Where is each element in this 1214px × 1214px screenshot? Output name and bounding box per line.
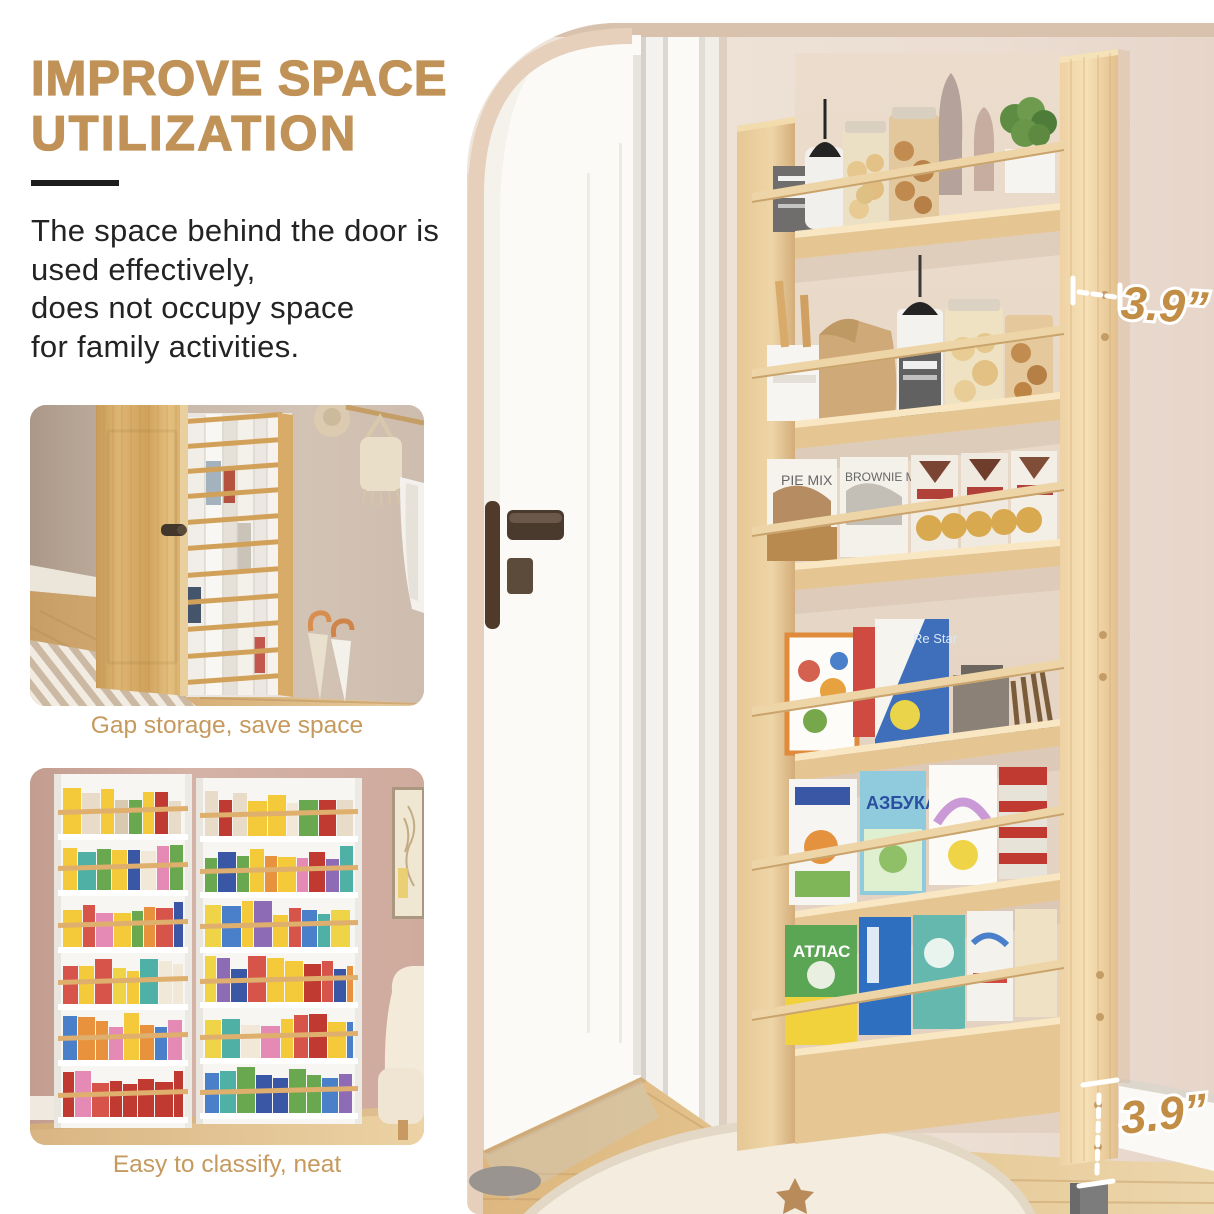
svg-text:PIE MIX: PIE MIX [781, 472, 833, 488]
svg-text:Re Star: Re Star [913, 631, 958, 646]
svg-text:АТЛАС: АТЛАС [793, 942, 850, 961]
svg-text:3.9”: 3.9” [1119, 276, 1209, 334]
svg-text:3.9”: 3.9” [1118, 1083, 1210, 1144]
svg-text:АЗБУКА: АЗБУКА [866, 793, 938, 813]
